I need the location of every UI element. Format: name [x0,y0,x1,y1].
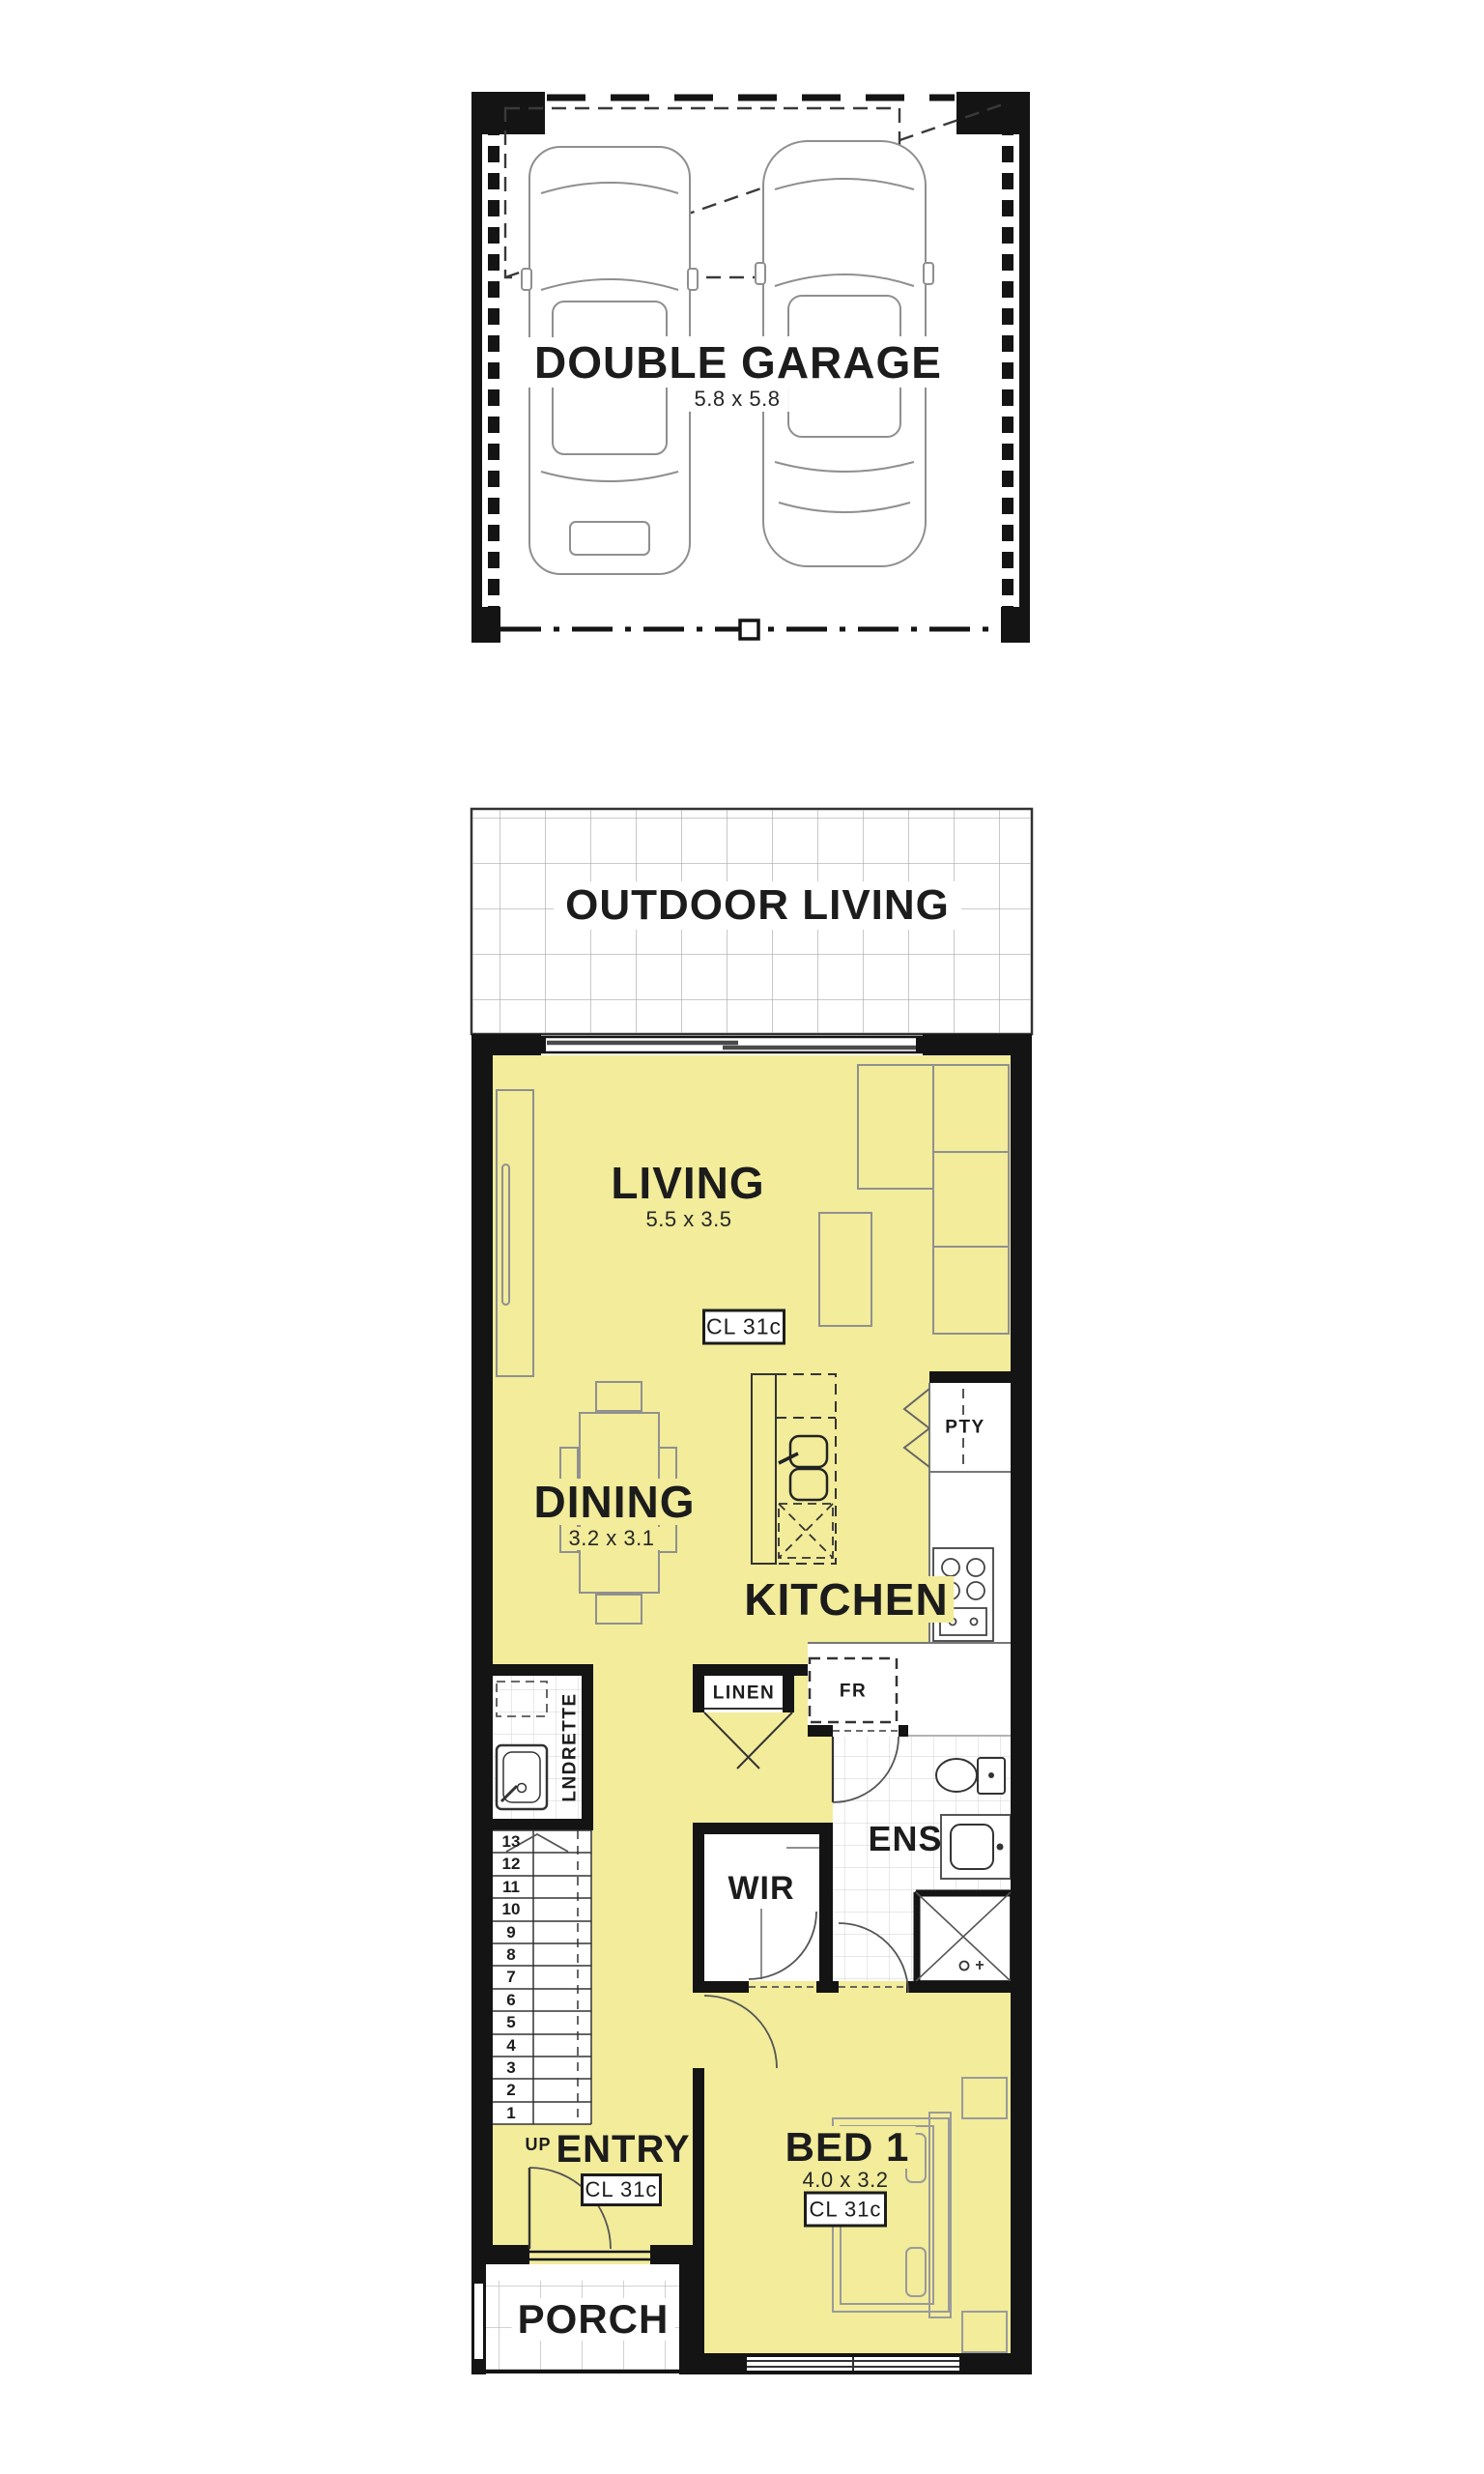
kitchen-label: KITCHEN [738,1576,954,1623]
stair-number: 2 [506,2081,515,2100]
stacker-door [539,1036,923,1053]
ensuite-label: ENS [868,1822,942,1856]
stair-number: 6 [506,1991,515,2010]
porch-label: PORCH [512,2298,675,2341]
entry-ceiling-tag: CL 31c [581,2173,662,2206]
porch-pier-gap [474,2284,483,2359]
stair-number: 10 [502,1900,521,1919]
living-dims: 5.5 x 3.5 [641,1208,738,1231]
laundrette-label: LNDRETTE [561,1692,580,1801]
dining-dims: 3.2 x 3.1 [563,1527,661,1550]
bed1-dims: 4.0 x 3.2 [797,2169,895,2192]
shower [916,1892,1011,1981]
stair-number: 3 [506,2058,515,2078]
living-ceiling-tag: CL 31c [702,1309,785,1345]
bed1-label: BED 1 [780,2126,916,2169]
bed1-window [747,2357,959,2371]
wir-label: WIR [728,1872,794,1905]
toilet [936,1758,1005,1794]
stair-number: 4 [506,2036,515,2056]
fridge-label: FR [836,1683,870,1701]
stair-number: 9 [506,1923,515,1942]
stair-number: 7 [506,1968,515,1987]
entry-label: ENTRY [556,2130,690,2169]
garage-dims: 5.8 x 5.8 [689,388,786,411]
vanity [941,1815,1011,1879]
bed1-ceiling-tag: CL 31c [804,2192,887,2228]
garage-slab-line [500,620,1001,639]
living-label: LIVING [605,1160,770,1206]
stair-number: 1 [506,2104,515,2123]
linen-label: LINEN [713,1684,776,1703]
garage-label: DOUBLE GARAGE [523,337,954,388]
pantry-label: PTY [945,1419,985,1437]
outdoor-living-label: OUTDOOR LIVING [554,881,961,930]
stair-number: 5 [506,2013,515,2032]
up-label: UP [525,2136,551,2153]
stair-number: 11 [502,1878,520,1897]
floorplan-page: DOUBLE GARAGE 5.8 x 5.8 OUTDOOR LIVING L… [0,0,1484,2474]
dining-label: DINING [528,1479,701,1525]
stair-number: 12 [502,1855,521,1874]
laundry-tub [497,1745,547,1809]
stair-number: 13 [502,1832,521,1852]
stair-number: 8 [506,1945,515,1965]
